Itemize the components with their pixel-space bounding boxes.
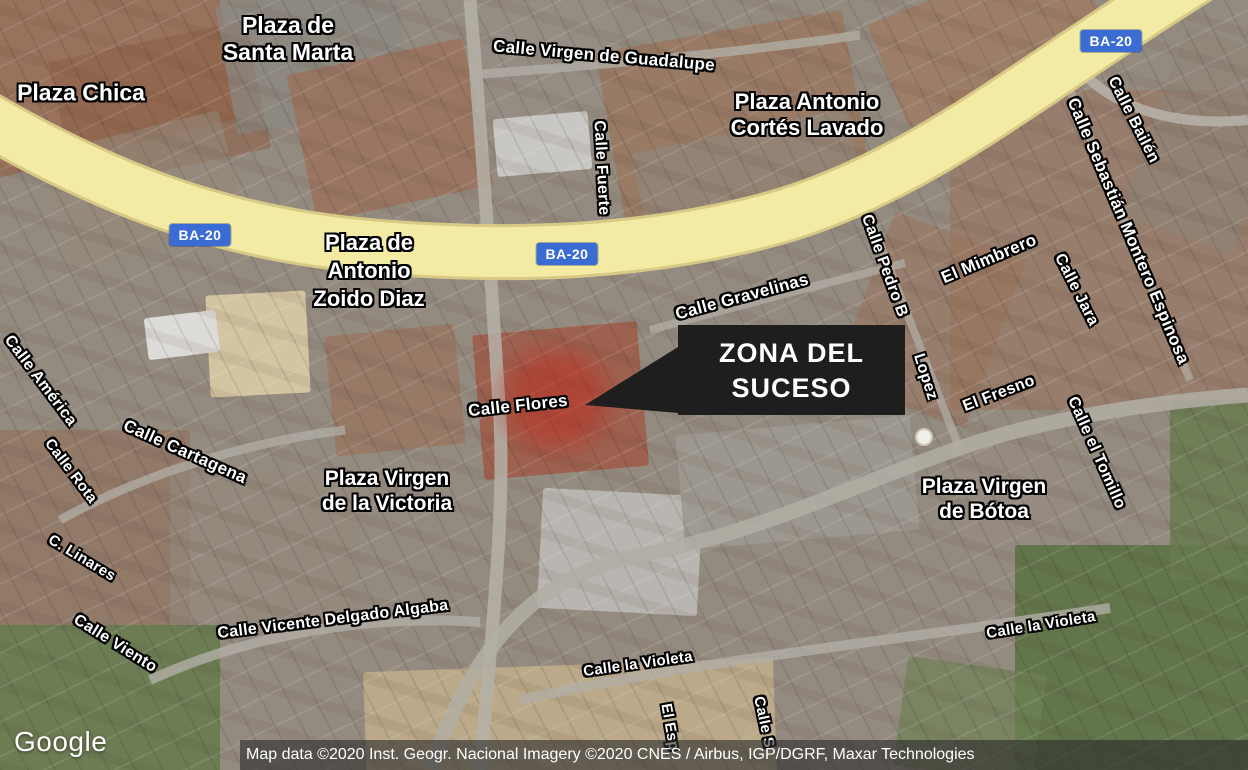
- plaza-label-zoido-diaz: Plaza de Antonio Zoido Diaz: [313, 229, 424, 313]
- plaza-label-santa-marta: Plaza de Santa Marta: [223, 12, 353, 66]
- plaza-label-cortes-lavado: Plaza Antonio Cortés Lavado: [731, 89, 884, 141]
- attribution-bar: Map data ©2020 Inst. Geogr. Nacional Ima…: [240, 740, 1248, 770]
- google-logo[interactable]: Google: [14, 726, 107, 758]
- plaza-label-line: Plaza Virgen: [322, 466, 452, 491]
- plaza-label-line: de la Victoria: [322, 491, 452, 516]
- plaza-label-line: Antonio: [313, 257, 424, 285]
- satellite-map[interactable]: Calle Virgen de Guadalupe Calle Fuerte C…: [0, 0, 1248, 770]
- plaza-label-line: Plaza Chica: [17, 80, 145, 107]
- road-shield-ba20-center: BA-20: [537, 243, 598, 265]
- street-line: [60, 430, 345, 520]
- plaza-label-line: Plaza de: [223, 12, 353, 39]
- incident-callout-line2: SUCESO: [678, 371, 905, 406]
- plaza-label-line: Plaza Virgen: [922, 474, 1047, 499]
- road-shield-ba20-left: BA-20: [170, 224, 231, 246]
- plaza-label-virgen-de-la-victoria: Plaza Virgen de la Victoria: [322, 466, 452, 516]
- plaza-label-chica: Plaza Chica: [17, 80, 145, 107]
- plaza-label-line: Santa Marta: [223, 39, 353, 66]
- plaza-label-line: Plaza de: [313, 229, 424, 257]
- incident-callout-line1: ZONA DEL: [678, 336, 905, 371]
- plaza-label-line: Plaza Antonio: [731, 89, 884, 115]
- plaza-label-line: de Bótoa: [922, 499, 1047, 524]
- road-shield-ba20-topright: BA-20: [1081, 30, 1142, 52]
- plaza-label-virgen-de-botoa: Plaza Virgen de Bótoa: [922, 474, 1047, 524]
- incident-callout: ZONA DEL SUCESO: [678, 325, 905, 415]
- plaza-label-line: Zoido Diaz: [313, 285, 424, 313]
- plaza-label-line: Cortés Lavado: [731, 115, 884, 141]
- roundabout-marker: [915, 428, 933, 446]
